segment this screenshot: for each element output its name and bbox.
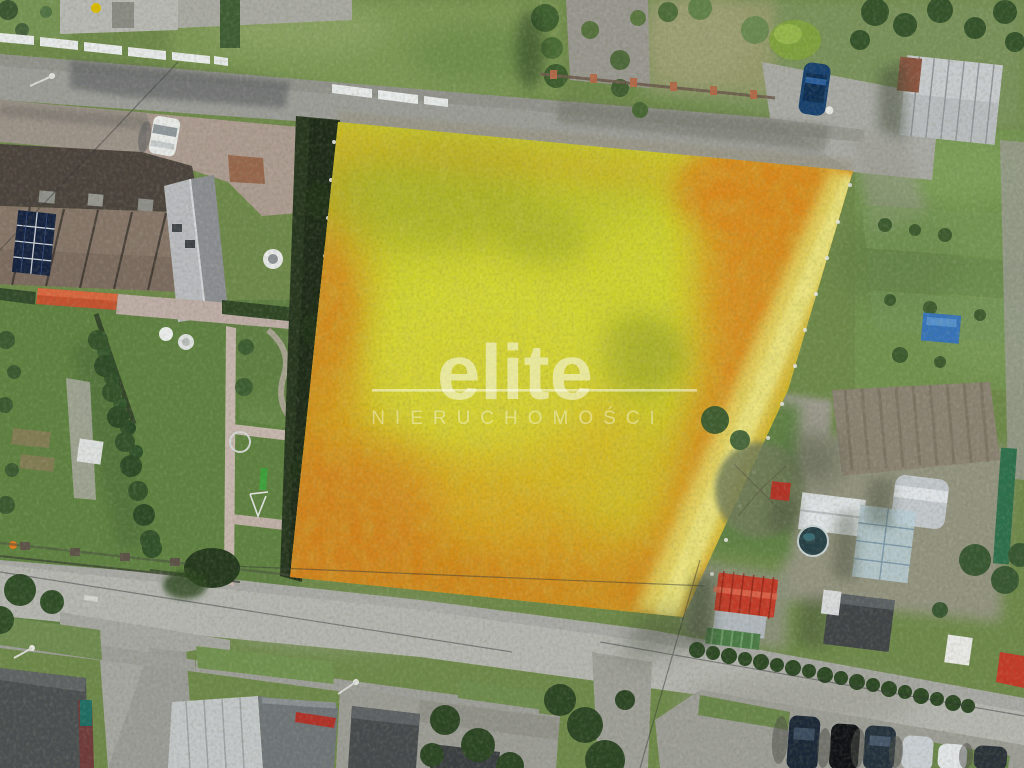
- svg-text:elite: elite: [437, 328, 593, 416]
- svg-text:NIERUCHOMOŚCI: NIERUCHOMOŚCI: [371, 407, 665, 429]
